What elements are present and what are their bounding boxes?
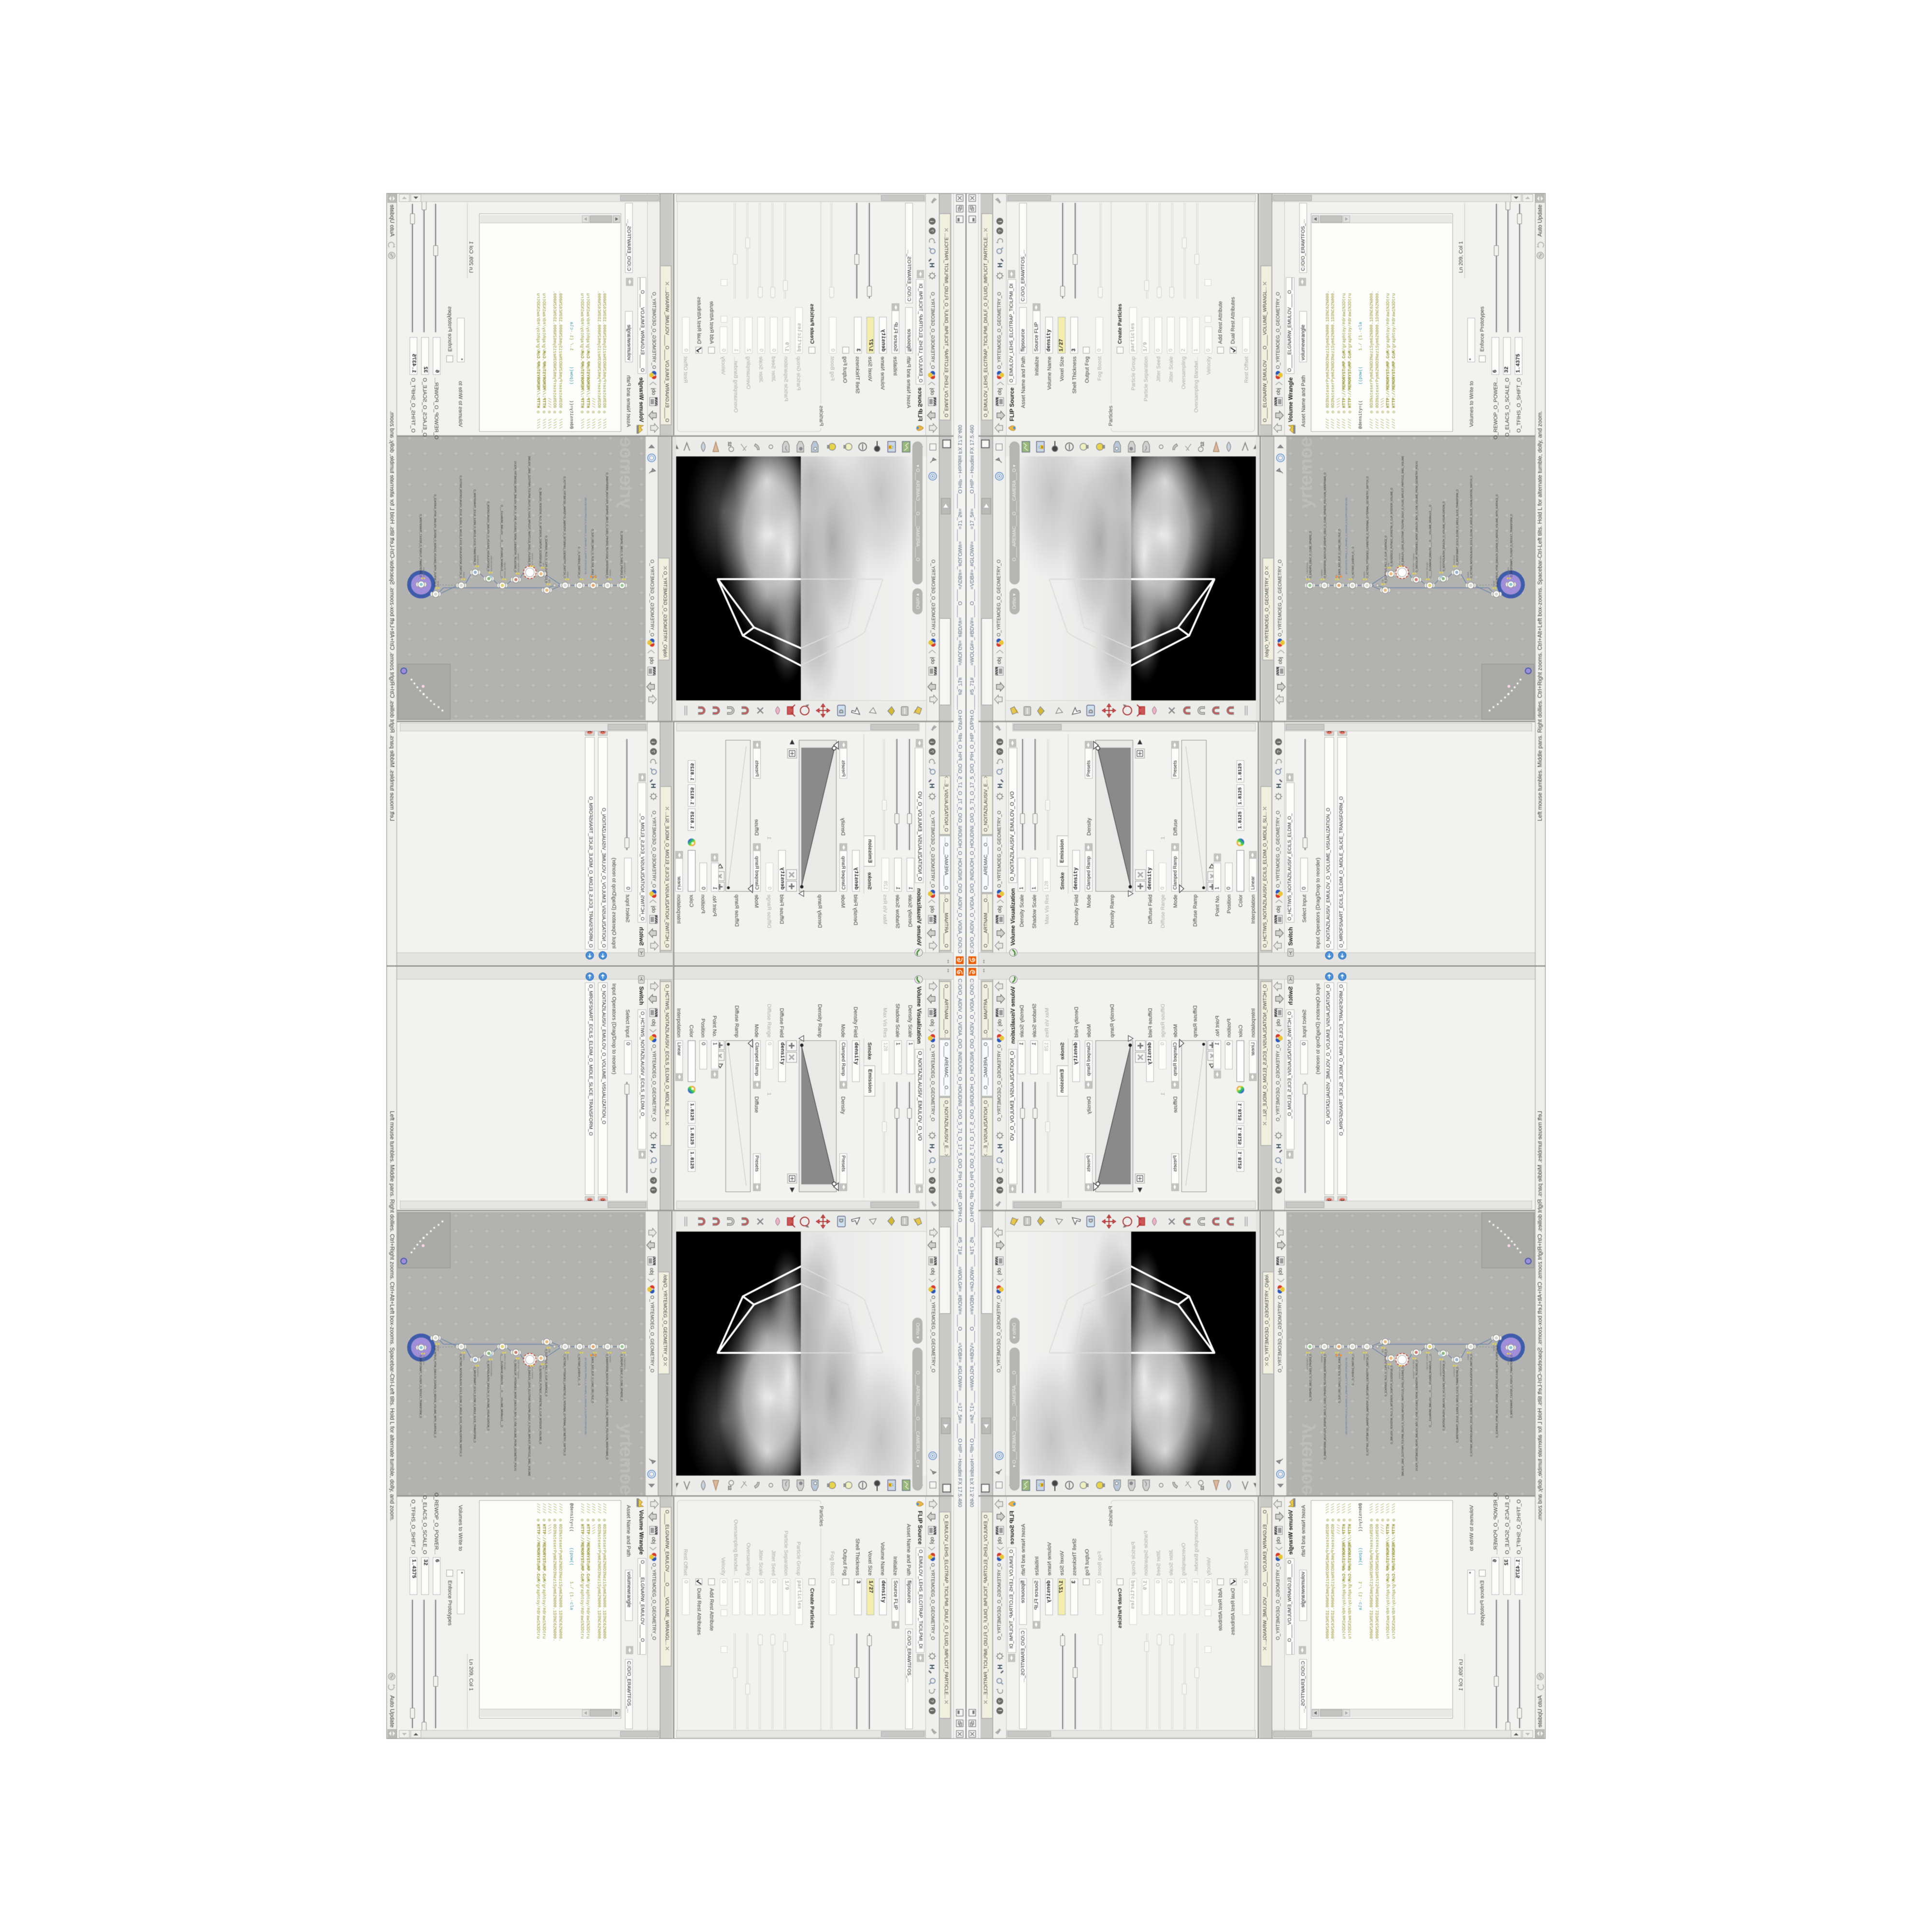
svg-text:O_SNOGILOP_YRTEMOEG_MORF_EMULO: O_SNOGILOP_YRTEMOEG_MORF_EMULOV_BDV_O_VD… [1416, 461, 1419, 572]
svg-text:Clip: Clip [542, 1365, 545, 1369]
svg-text:Switch: Switch [567, 1354, 569, 1361]
svg-text:O_BUSERDCE_PUTNOC_ROIRETNI_O_C: O_BUSERDCE_PUTNOC_ROIRETNI_O_CLIP_INTERI… [539, 1365, 541, 1444]
svg-text:Clip: Clip [548, 579, 551, 583]
svg-text:i: i [998, 741, 1003, 743]
svg-text:i: i [998, 221, 1003, 222]
svg-text:D: D [838, 710, 844, 713]
svg-text:VDB from Polygons: VDB from Polygons [517, 553, 520, 572]
svg-text:O_EMULOV_LEHS_ELCITRAP_TICILPM: O_EMULOV_LEHS_ELCITRAP_TICILPMI_DIULF_O_… [1402, 1367, 1405, 1477]
svg-text:Transform: Transform [477, 555, 479, 565]
svg-text:Clip: Clip [548, 1349, 551, 1353]
svg-text:H: H [650, 783, 657, 788]
svg-text:O_ECAFRUS_HTIW_EMULOV_EGREM_O_: O_ECAFRUS_HTIW_EMULOV_EGREM_O_MERGE_VOLU… [433, 1345, 436, 1438]
svg-text:i: i [1277, 1189, 1282, 1191]
svg-text:?: ? [650, 1179, 655, 1182]
svg-text:Switch: Switch [1363, 571, 1365, 578]
svg-text:O_HCTIWS_NOITAZILAUSIV_ECILS_E: O_HCTIWS_NOITAZILAUSIV_ECILS_ELDIM_O_MID… [1470, 1354, 1473, 1457]
svg-text:O____ELGNARW_EMULOV____O____VO: O____ELGNARW_EMULOV____O____VOLUME_WRANG… [500, 505, 503, 578]
svg-text:VolumeVisualiza: VolumeVisualiza [490, 1361, 493, 1377]
svg-text:🔒: 🔒 [1038, 1482, 1044, 1488]
svg-text:i: i [650, 1189, 655, 1191]
svg-text:O_HCTIWS_YRTEMOEG_LANRETXE_O_I: O_HCTIWS_YRTEMOEG_LANRETXE_O_INTERNAL_EX… [563, 1354, 566, 1456]
svg-text:H: H [928, 263, 936, 268]
svg-text:Transform: Transform [1453, 1367, 1455, 1377]
svg-text:O_BUSERDCE_PUTNOC_ROIRETNI_O_C: O_BUSERDCE_PUTNOC_ROIRETNI_O_CLIP_INTERI… [539, 488, 541, 567]
svg-text:Clip: Clip [1381, 1349, 1384, 1353]
svg-text:Clip: Clip [542, 563, 545, 567]
svg-text:.BO.VD3.PETS.TRPOLS_O_5SUNEG_O: .BO.VD3.PETS.TRPOLS_O_5SUNEG_O_GENUS3_O.… [584, 1357, 587, 1435]
svg-text:Clip: Clip [1381, 579, 1384, 583]
svg-text:?: ? [1277, 1179, 1282, 1182]
svg-text:H: H [996, 263, 1004, 268]
svg-text:O_ECAFRUS_HTIW_EMULOV_EGREM_O_: O_ECAFRUS_HTIW_EMULOV_EGREM_O_MERGE_VOLU… [1496, 494, 1499, 587]
svg-text:O_NOITAZILAUSIV_EMULOV_O_VOLUM: O_NOITAZILAUSIV_EMULOV_O_VOLUME_VISUALIZ… [1443, 501, 1446, 571]
svg-text:PolyWire: PolyWire [609, 1354, 611, 1363]
svg-text:Transform: Transform [1507, 1355, 1509, 1365]
svg-text:?: ? [929, 229, 934, 232]
svg-text:O_ECAFRUS_HTIW_EMULOV_EGREM_O_: O_ECAFRUS_HTIW_EMULOV_EGREM_O_MERGE_VOLU… [433, 494, 436, 587]
svg-text:.BO.VD3.PETS.TRPOLS_O_5SUNEG_O: .BO.VD3.PETS.TRPOLS_O_5SUNEG_O_GENUS3_O.… [1345, 1357, 1348, 1435]
svg-text:i: i [998, 1710, 1003, 1711]
svg-text:Volume Wrangle: Volume Wrangle [504, 562, 506, 578]
svg-text:🔒: 🔒 [888, 1482, 894, 1488]
svg-text:O_NOITAZILAUSIV_EMULOV_O_VOLUM: O_NOITAZILAUSIV_EMULOV_O_VOLUME_VISUALIZ… [486, 1361, 489, 1431]
svg-text:Switch: Switch [463, 1354, 465, 1361]
svg-text:.BO.VD3.PETS.TRPOLS_O_5SUNEG_O: .BO.VD3.PETS.TRPOLS_O_5SUNEG_O_GENUS3_O.… [1345, 497, 1348, 575]
svg-text:VolumeVisualiza: VolumeVisualiza [1439, 1361, 1442, 1377]
svg-text:D: D [1088, 1219, 1094, 1222]
svg-text:?: ? [998, 1700, 1003, 1703]
svg-text:O_HCTIWS_DIRBYH_O_...O: O_HCTIWS_DIRBYH_O_...O [1352, 546, 1355, 578]
svg-text:O_EMARFERIW_NOGYLOP_EREHPS_EBU: O_EMARFERIW_NOGYLOP_EREHPS_EBUC_O_CUBE_S… [1324, 1354, 1327, 1460]
svg-text:12: 12 [727, 1486, 732, 1490]
svg-text:Volume Wrangle: Volume Wrangle [1426, 562, 1428, 578]
svg-text:ae_CubeSphere: ae_CubeSphere [1306, 1354, 1308, 1370]
svg-text:O_EMARFERIW_NOGYLOP_EREHPS_EBU: O_EMARFERIW_NOGYLOP_EREHPS_EBUC_O_CUBE_S… [605, 472, 608, 578]
svg-text:O_DAOL_BJO_ELIF_O_LOAD_OBJ_FIL: O_DAOL_BJO_ELIF_O_LOAD_OBJ_FILE_O [591, 1354, 594, 1403]
svg-text:D: D [838, 1219, 844, 1222]
svg-text:🔒: 🔒 [888, 444, 894, 450]
svg-text:O_EMARFERIW_NOGYLOP_EREHPS_EBU: O_EMARFERIW_NOGYLOP_EREHPS_EBUC_O_CUBE_S… [605, 1354, 608, 1460]
svg-text:O_DAOL_BJO_ELIF_O_LOAD_OBJ_FIL: O_DAOL_BJO_ELIF_O_LOAD_OBJ_FILE_O [1338, 529, 1341, 578]
svg-text:H: H [996, 1144, 1004, 1149]
svg-text:12: 12 [1200, 1486, 1205, 1490]
svg-text:Transform: Transform [1507, 567, 1509, 577]
svg-text:Merge: Merge [437, 581, 440, 587]
svg-text:PolyWire: PolyWire [609, 569, 611, 578]
svg-text:FLIP Source: FLIP Source [531, 553, 534, 565]
svg-text:Switch: Switch [1467, 571, 1469, 578]
svg-text:?: ? [929, 1179, 934, 1182]
svg-text:O____ELGNARW_EMULOV____O____VO: O____ELGNARW_EMULOV____O____VOLUME_WRANG… [1429, 505, 1432, 578]
svg-text:H: H [996, 783, 1004, 788]
svg-text:O_MROFSNART_TLUSER_O_RESULT_TR: O_MROFSNART_TLUSER_O_RESULT_TRANSFORM_O [1510, 1355, 1513, 1418]
svg-text:H: H [650, 1144, 657, 1149]
svg-text:Switch: Switch [1467, 1354, 1469, 1361]
svg-text:VolumeVisualiza: VolumeVisualiza [1439, 555, 1442, 571]
svg-text:O_MROFSNART_ECILS_ELDIM_O_MIDL: O_MROFSNART_ECILS_ELDIM_O_MIDLE_SLICE_TR… [1456, 1367, 1459, 1443]
svg-text:?: ? [998, 229, 1003, 232]
svg-text:Volume Wrangle: Volume Wrangle [504, 1354, 506, 1370]
svg-text:Transform: Transform [423, 567, 425, 577]
svg-text:12: 12 [727, 442, 732, 446]
svg-text:i: i [929, 1710, 934, 1711]
svg-text:VolumeVisualiza: VolumeVisualiza [490, 555, 493, 571]
svg-text:O_BUSERDCE_PUTNOC_ROIRETNI_O_C: O_BUSERDCE_PUTNOC_ROIRETNI_O_CLIP_INTERI… [1391, 1365, 1393, 1444]
svg-text:H: H [928, 1144, 936, 1149]
svg-text:ae_CubeSphere: ae_CubeSphere [624, 1354, 626, 1370]
svg-text:i: i [650, 741, 655, 743]
svg-text:?: ? [929, 1700, 934, 1703]
svg-text:?: ? [998, 1179, 1003, 1182]
svg-text:?: ? [650, 750, 655, 753]
svg-text:O_HCTIWS_DIRBYH_O_...O: O_HCTIWS_DIRBYH_O_...O [1352, 1354, 1355, 1386]
svg-text:Transform: Transform [423, 1355, 425, 1365]
svg-text:O_MROFSNART_ECILS_ELDIM_O_MIDL: O_MROFSNART_ECILS_ELDIM_O_MIDLE_SLICE_TR… [1456, 489, 1459, 565]
svg-text:O_MROFSNART_TLUSER_O_RESULT_TR: O_MROFSNART_TLUSER_O_RESULT_TRANSFORM_O [1510, 514, 1513, 577]
svg-text:Transform: Transform [477, 1367, 479, 1377]
svg-text:?: ? [1277, 750, 1282, 753]
svg-text:VDB from Polygons: VDB from Polygons [1412, 553, 1415, 572]
svg-text:O_MROFSNART_ECILS_ELDIM_O_MIDL: O_MROFSNART_ECILS_ELDIM_O_MIDLE_SLICE_TR… [473, 489, 476, 565]
svg-text:?: ? [998, 750, 1003, 753]
svg-text:Merge: Merge [1492, 581, 1495, 587]
svg-text:Switch: Switch [1363, 1354, 1365, 1361]
svg-text:H: H [1275, 1144, 1282, 1149]
svg-text:Switch: Switch [463, 571, 465, 578]
svg-text:O_NOITAZILAUSIV_EMULOV_O_VOLUM: O_NOITAZILAUSIV_EMULOV_O_VOLUME_VISUALIZ… [486, 501, 489, 571]
svg-text:ae_CubeSphere: ae_CubeSphere [624, 562, 626, 578]
svg-text:O_EREHPS_EBUC_O_CUBE_SPHERE_O: O_EREHPS_EBUC_O_CUBE_SPHERE_O [1309, 531, 1312, 578]
svg-text:ae_CubeSphere: ae_CubeSphere [1306, 562, 1308, 578]
svg-text:i: i [929, 1189, 934, 1191]
svg-text:O_HCTIWS_DIRBYH_O_...O: O_HCTIWS_DIRBYH_O_...O [577, 1354, 580, 1386]
svg-text:Volume Wrangle: Volume Wrangle [1426, 1354, 1428, 1370]
svg-text:O_DAOL_BJO_ELIF_O_LOAD_OBJ_FIL: O_DAOL_BJO_ELIF_O_LOAD_OBJ_FILE_O [591, 529, 594, 578]
svg-text:O_HCTIWS_NOITAZILAUSIV_ECILS_E: O_HCTIWS_NOITAZILAUSIV_ECILS_ELDIM_O_MID… [459, 1354, 462, 1457]
svg-text:i: i [929, 221, 934, 222]
svg-text:FLIP Source: FLIP Source [1398, 553, 1401, 565]
svg-text:?: ? [929, 750, 934, 753]
svg-text:O_SNOGILOP_YRTEMOEG_MORF_EMULO: O_SNOGILOP_YRTEMOEG_MORF_EMULOV_BDV_O_VD… [1416, 1360, 1419, 1471]
svg-text:i: i [998, 1189, 1003, 1191]
svg-text:O_HCTIWS_YRTEMOEG_LANRETXE_O_I: O_HCTIWS_YRTEMOEG_LANRETXE_O_INTERNAL_EX… [563, 476, 566, 578]
svg-text:O_DAOL_BJO_ELIF_O_LOAD_OBJ_FIL: O_DAOL_BJO_ELIF_O_LOAD_OBJ_FILE_O [1338, 1354, 1341, 1403]
svg-text:O_HCTIWS_NOITAZILAUSIV_ECILS_E: O_HCTIWS_NOITAZILAUSIV_ECILS_ELDIM_O_MID… [459, 475, 462, 578]
svg-text:O_SNOGILOP_YRTEMOEG_MORF_EMULO: O_SNOGILOP_YRTEMOEG_MORF_EMULOV_BDV_O_VD… [513, 461, 516, 572]
svg-text:H: H [1275, 783, 1282, 788]
svg-text:H: H [996, 1664, 1004, 1669]
svg-text:O_BUSERDCE_PUTNOC_ROIRETNI_O_C: O_BUSERDCE_PUTNOC_ROIRETNI_O_CLIP_INTERI… [1391, 488, 1393, 567]
svg-text:O_EMARFERIW_NOGYLOP_EREHPS_EBU: O_EMARFERIW_NOGYLOP_EREHPS_EBUC_O_CUBE_S… [1324, 472, 1327, 578]
svg-text:FLIP Source: FLIP Source [531, 1367, 534, 1379]
svg-text:O_MROFSNART_ECILS_ELDIM_O_MIDL: O_MROFSNART_ECILS_ELDIM_O_MIDLE_SLICE_TR… [473, 1367, 476, 1443]
svg-text:O_EMULOV_LEHS_ELCITRAP_TICILPM: O_EMULOV_LEHS_ELCITRAP_TICILPMI_DIULF_O_… [1402, 455, 1405, 565]
svg-text:H: H [928, 783, 936, 788]
svg-text:Clip: Clip [1387, 1365, 1390, 1369]
svg-text:O_HCTIWS_YRTEMOEG_LANRETXE_O_I: O_HCTIWS_YRTEMOEG_LANRETXE_O_INTERNAL_EX… [1366, 1354, 1369, 1456]
svg-text:O_EMULOV_LEHS_ELCITRAP_TICILPM: O_EMULOV_LEHS_ELCITRAP_TICILPMI_DIULF_O_… [527, 455, 530, 565]
svg-text:O_EREHPS_EBUC_O_CUBE_SPHERE_O: O_EREHPS_EBUC_O_CUBE_SPHERE_O [1309, 1354, 1312, 1401]
svg-text:O_EREHPS_EBUC_O_CUBE_SPHERE_O: O_EREHPS_EBUC_O_CUBE_SPHERE_O [620, 1354, 623, 1401]
svg-text:O_EMULOV_LEHS_ELCITRAP_TICILPM: O_EMULOV_LEHS_ELCITRAP_TICILPMI_DIULF_O_… [527, 1367, 530, 1477]
svg-text:🔒: 🔒 [1038, 444, 1044, 450]
svg-text:O_ECAFRUS_HTIW_EMULOV_EGREM_O_: O_ECAFRUS_HTIW_EMULOV_EGREM_O_MERGE_VOLU… [1496, 1345, 1499, 1438]
svg-text:D: D [1088, 710, 1094, 713]
svg-text:O_NOITAZILAUSIV_EMULOV_O_VOLUM: O_NOITAZILAUSIV_EMULOV_O_VOLUME_VISUALIZ… [1443, 1361, 1446, 1431]
svg-text:O_MROFSNART_TLUSER_O_RESULT_TR: O_MROFSNART_TLUSER_O_RESULT_TRANSFORM_O [419, 1355, 422, 1418]
svg-text:O_HCTIWS_YRTEMOEG_LANRETXE_O_I: O_HCTIWS_YRTEMOEG_LANRETXE_O_INTERNAL_EX… [1366, 476, 1369, 578]
svg-text:O_EREHPS_EBUC_O_CUBE_SPHERE_O: O_EREHPS_EBUC_O_CUBE_SPHERE_O [620, 531, 623, 578]
svg-text:i: i [1277, 741, 1282, 743]
svg-text:.BO.VD3.PETS.TRPOLS_O_5SUNEG_O: .BO.VD3.PETS.TRPOLS_O_5SUNEG_O_GENUS3_O.… [584, 497, 587, 575]
svg-text:Switch: Switch [567, 571, 569, 578]
svg-text:O_SNOGILOP_YRTEMOEG_MORF_EMULO: O_SNOGILOP_YRTEMOEG_MORF_EMULOV_BDV_O_VD… [513, 1360, 516, 1471]
svg-text:Merge: Merge [437, 1345, 440, 1351]
svg-text:O_HCTIWS_DIRBYH_O_...O: O_HCTIWS_DIRBYH_O_...O [577, 546, 580, 578]
svg-text:O_HCTIWS_NOITAZILAUSIV_ECILS_E: O_HCTIWS_NOITAZILAUSIV_ECILS_ELDIM_O_MID… [1470, 475, 1473, 578]
svg-text:PolyWire: PolyWire [1321, 569, 1323, 578]
svg-text:Clip: Clip [1387, 563, 1390, 567]
svg-text:Transform: Transform [1453, 555, 1455, 565]
svg-text:O_MROFSNART_TLUSER_O_RESULT_TR: O_MROFSNART_TLUSER_O_RESULT_TRANSFORM_O [419, 514, 422, 577]
svg-text:H: H [928, 1664, 936, 1669]
svg-text:VDB from Polygons: VDB from Polygons [1412, 1360, 1415, 1379]
svg-text:PolyWire: PolyWire [1321, 1354, 1323, 1363]
svg-text:i: i [929, 741, 934, 743]
svg-text:VDB from Polygons: VDB from Polygons [517, 1360, 520, 1379]
svg-text:FLIP Source: FLIP Source [1398, 1367, 1401, 1379]
svg-text:Merge: Merge [1492, 1345, 1495, 1351]
svg-text:O____ELGNARW_EMULOV____O____VO: O____ELGNARW_EMULOV____O____VOLUME_WRANG… [500, 1354, 503, 1427]
svg-text:O____ELGNARW_EMULOV____O____VO: O____ELGNARW_EMULOV____O____VOLUME_WRANG… [1429, 1354, 1432, 1427]
svg-text:12: 12 [1200, 442, 1205, 446]
